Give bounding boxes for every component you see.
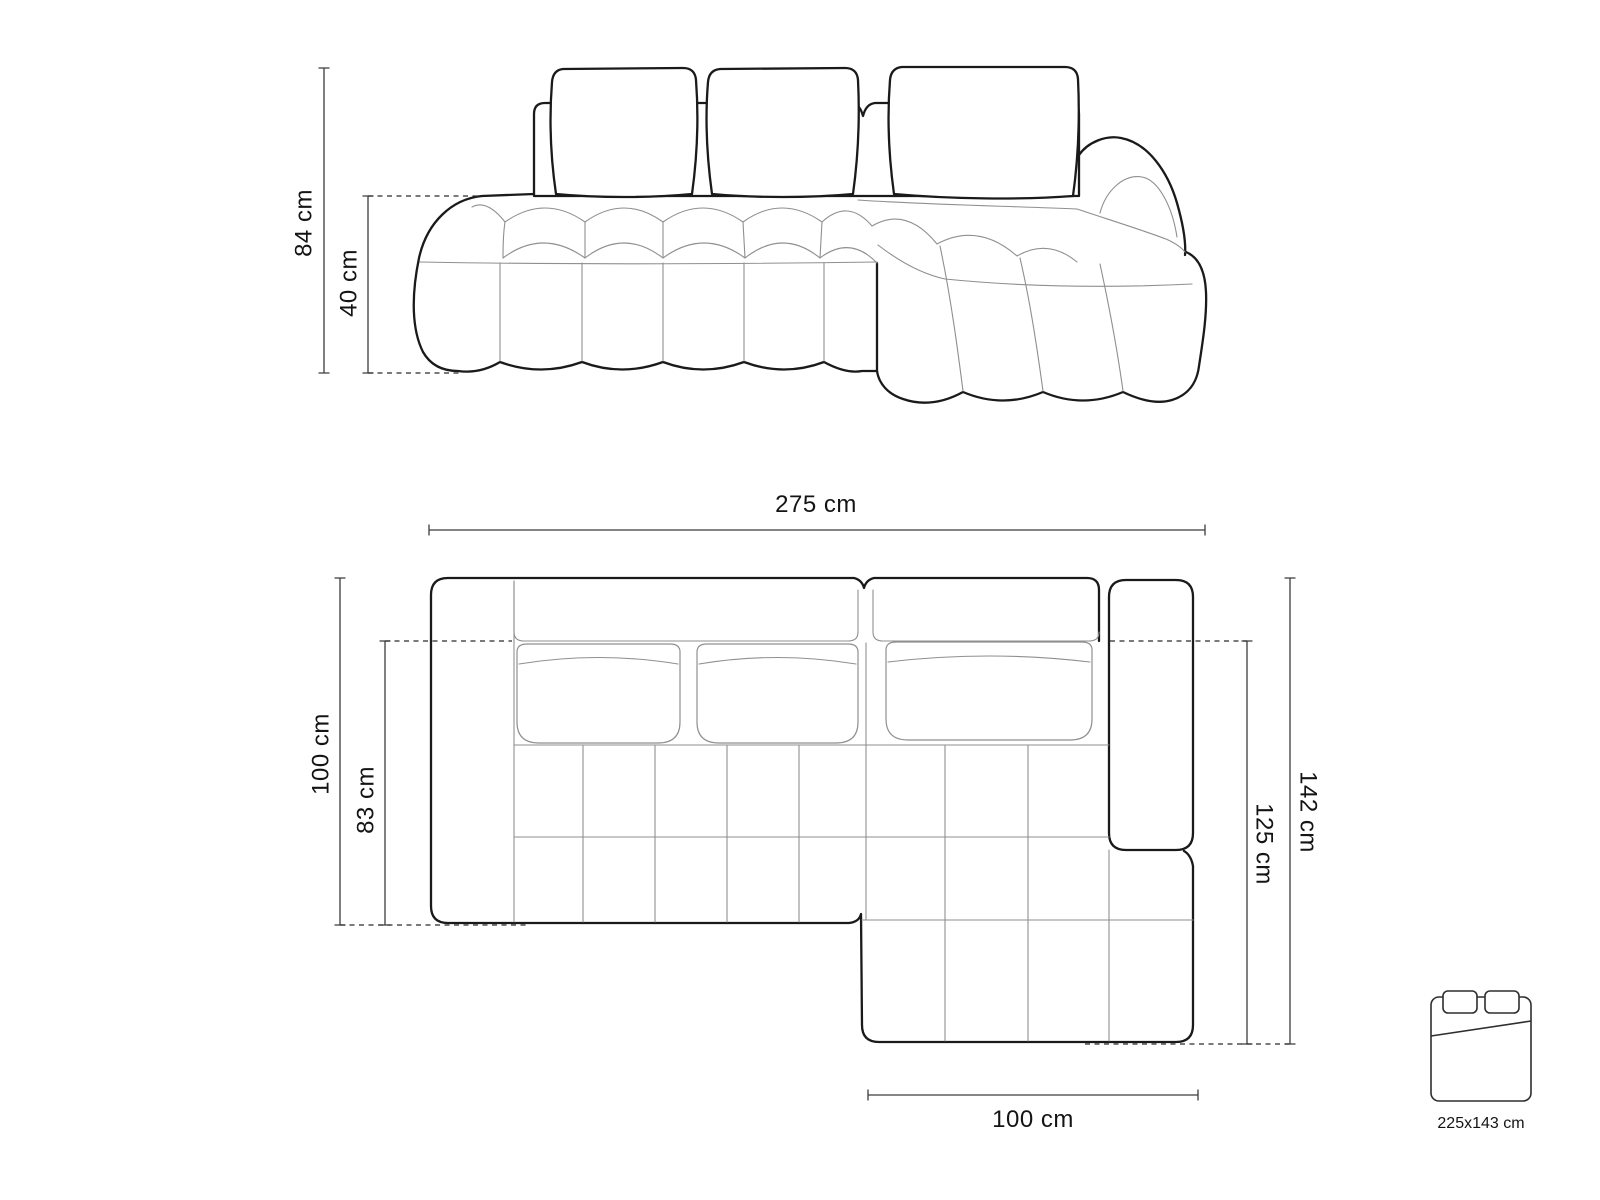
plan-seat-depth-label: 83 cm	[352, 766, 379, 834]
plan-chaise-width-label: 100 cm	[992, 1106, 1074, 1133]
front-chaise-dividers	[940, 246, 1123, 391]
front-tufting-row-upper	[472, 205, 1077, 262]
dimension-plan-side-total: 142 cm	[1285, 578, 1322, 1044]
dimension-front-total-height: 84 cm	[290, 68, 329, 373]
front-reference-dashes	[368, 196, 478, 373]
sofa-dimension-diagram: 84 cm 40 cm 275 cm 100 cm	[0, 0, 1600, 1200]
front-body-outline	[414, 194, 877, 372]
front-armrest-inner-seam	[1100, 177, 1177, 237]
front-back-pillow-right	[889, 67, 1079, 198]
bed-blanket-line-icon	[1431, 1021, 1531, 1036]
top-view: 275 cm 100 cm 83 cm 142 cm 125 cm 100 cm	[307, 491, 1321, 1133]
plan-armrest	[1109, 580, 1193, 850]
front-back-pillow-left	[551, 68, 698, 197]
sleeping-area-label: 225x143 cm	[1437, 1115, 1524, 1132]
bed-pillow-right-icon	[1485, 991, 1519, 1013]
plan-side-total-label: 142 cm	[1295, 771, 1322, 853]
front-chaise-surface	[878, 245, 1192, 286]
dimension-plan-total-width: 275 cm	[429, 491, 1205, 536]
plan-backrest-sections	[514, 581, 1099, 641]
bed-pillow-left-icon	[1443, 991, 1477, 1013]
plan-seat-cushion-left	[517, 644, 680, 743]
plan-side-inner-label: 125 cm	[1251, 803, 1278, 885]
plan-total-depth-label: 100 cm	[307, 713, 334, 795]
dimension-plan-total-depth: 100 cm	[307, 578, 345, 925]
front-seat-height-label: 40 cm	[335, 249, 362, 317]
front-back-pillow-middle	[707, 68, 859, 197]
sofa-bed-icon: 225x143 cm	[1431, 991, 1531, 1132]
dimension-front-seat-height: 40 cm	[335, 196, 373, 373]
dimension-plan-chaise-width: 100 cm	[868, 1090, 1198, 1134]
dimension-plan-seat-depth: 83 cm	[352, 641, 390, 925]
plan-seat-cushion-middle	[697, 644, 858, 743]
front-seat-edge-line	[420, 200, 1185, 264]
front-armrest	[1079, 137, 1185, 255]
diagram-canvas: 84 cm 40 cm 275 cm 100 cm	[0, 0, 1600, 1200]
dimension-plan-side-inner: 125 cm	[1242, 641, 1278, 1044]
front-tufting-row-lower	[503, 222, 877, 263]
front-face-dividers	[500, 263, 824, 361]
plan-total-width-label: 275 cm	[775, 491, 857, 518]
front-total-height-label: 84 cm	[290, 189, 317, 257]
front-view: 84 cm 40 cm	[290, 67, 1206, 403]
plan-seat-cushion-right	[886, 642, 1092, 740]
